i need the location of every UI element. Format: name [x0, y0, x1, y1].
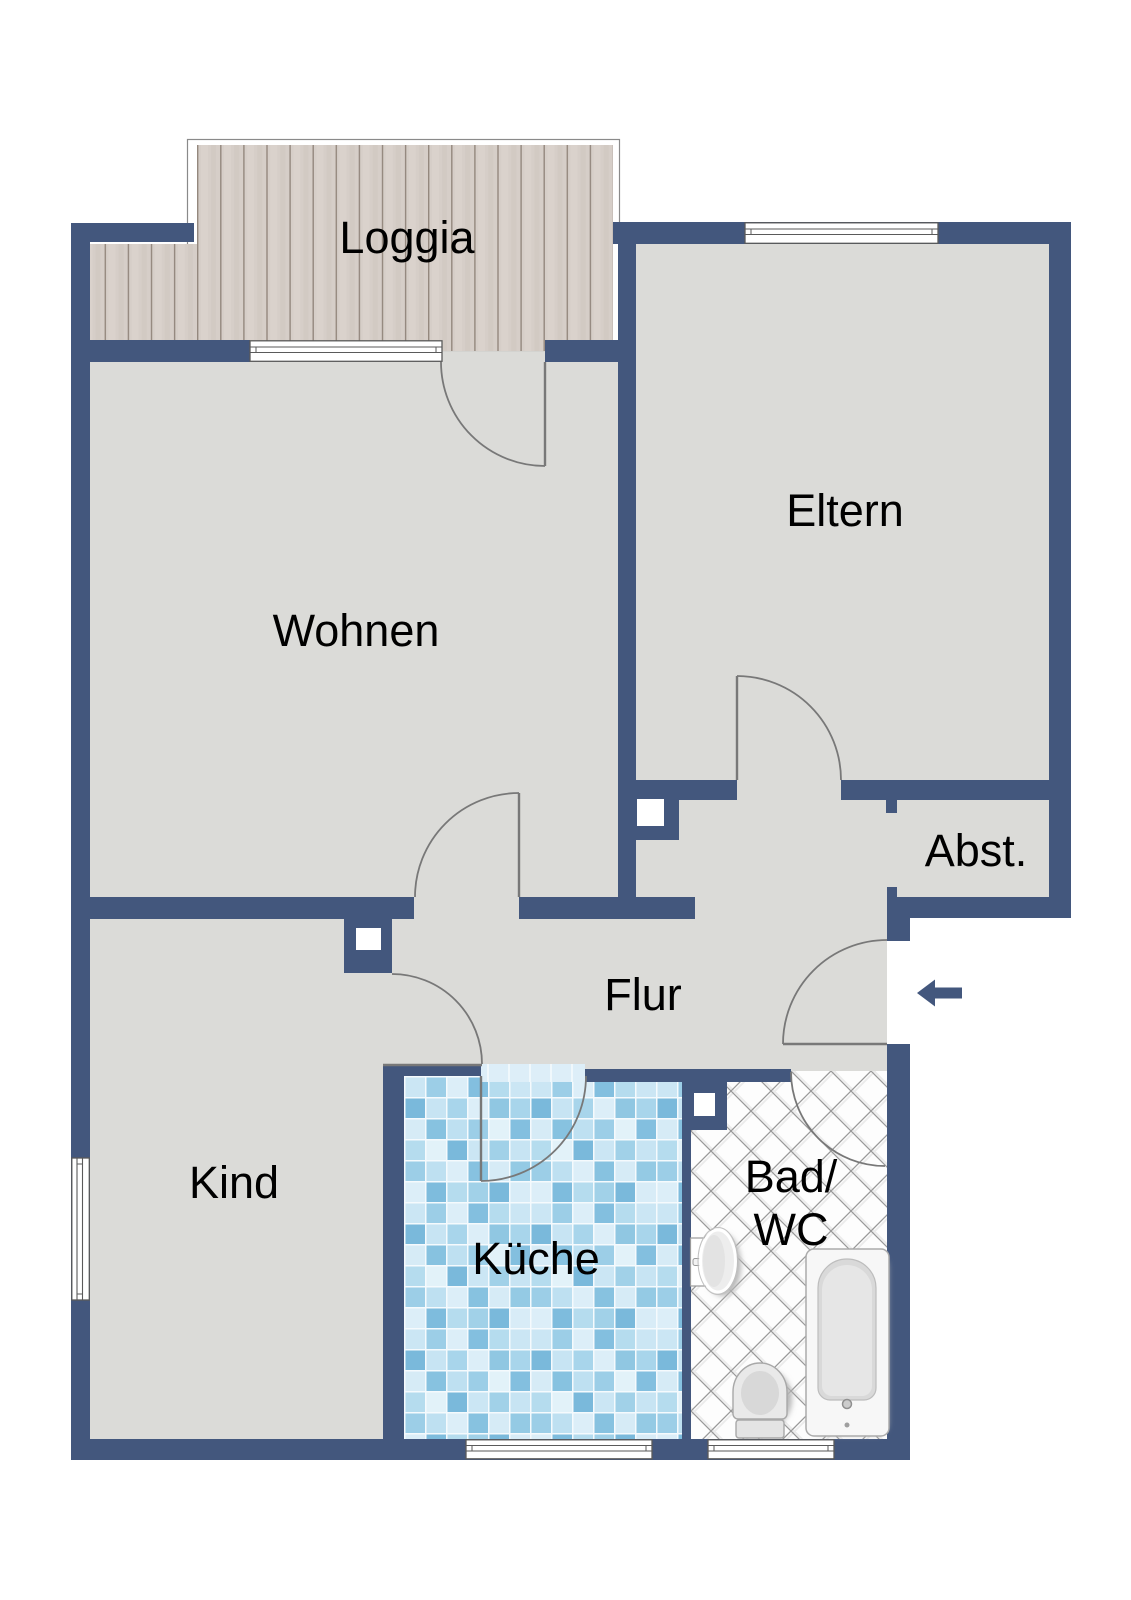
svg-text:Bad/: Bad/ [745, 1151, 838, 1202]
svg-text:Loggia: Loggia [339, 212, 475, 263]
svg-text:Abst.: Abst. [925, 825, 1028, 876]
svg-text:Küche: Küche [472, 1233, 600, 1284]
svg-text:Kind: Kind [189, 1157, 279, 1208]
svg-text:WC: WC [754, 1204, 829, 1255]
svg-text:Flur: Flur [604, 969, 682, 1020]
svg-text:Wohnen: Wohnen [273, 605, 440, 656]
svg-text:Eltern: Eltern [786, 485, 904, 536]
